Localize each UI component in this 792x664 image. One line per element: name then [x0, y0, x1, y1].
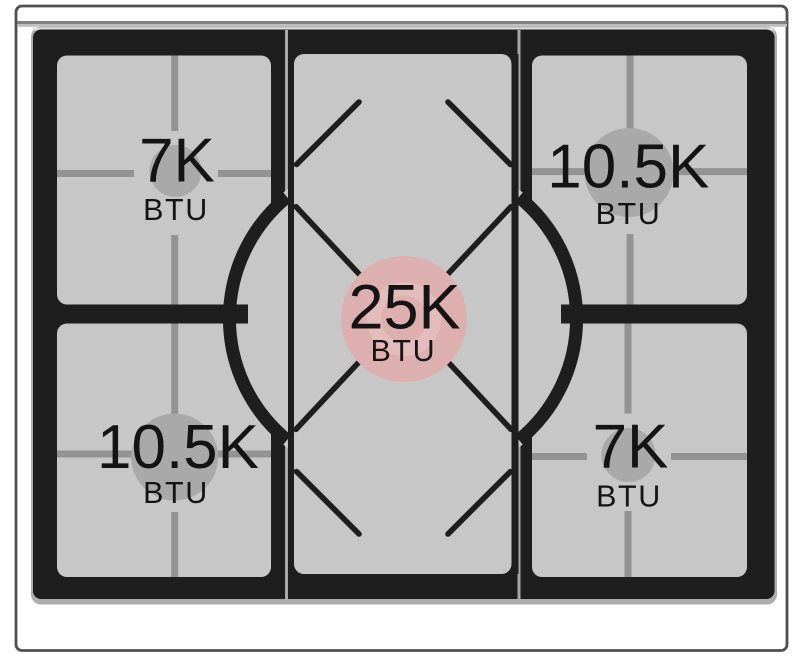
- svg-text:25K: 25K: [348, 273, 460, 343]
- svg-text:10.5K: 10.5K: [97, 413, 259, 482]
- svg-text:BTU: BTU: [370, 334, 436, 368]
- svg-text:7K: 7K: [593, 413, 669, 482]
- svg-text:BTU: BTU: [143, 476, 209, 510]
- svg-text:BTU: BTU: [596, 197, 662, 231]
- svg-text:7K: 7K: [139, 127, 215, 196]
- svg-text:10.5K: 10.5K: [547, 133, 709, 202]
- svg-text:BTU: BTU: [143, 193, 209, 227]
- svg-text:BTU: BTU: [596, 480, 662, 514]
